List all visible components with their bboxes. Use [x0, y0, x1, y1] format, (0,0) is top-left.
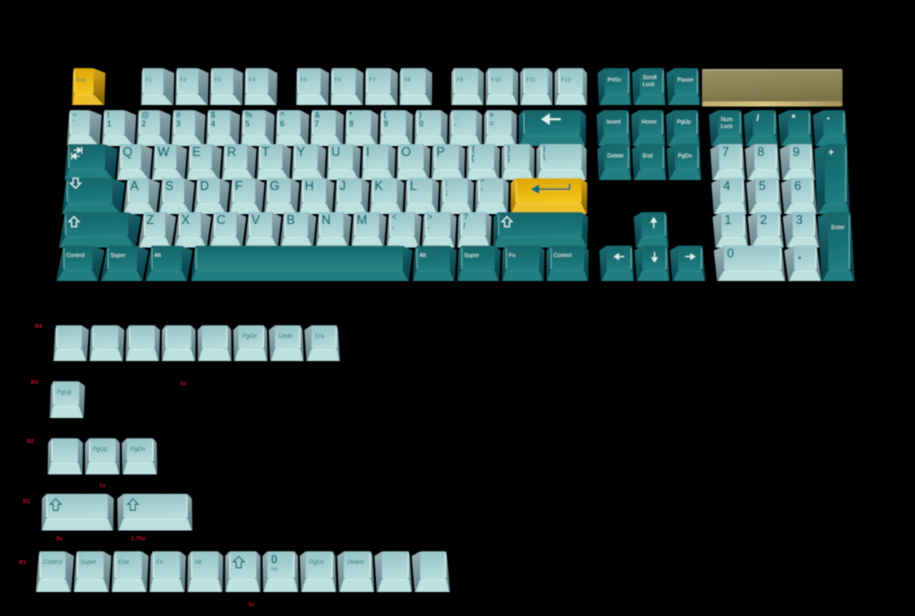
svg-text:R1: R1 [19, 560, 26, 566]
svg-text:R: R [227, 145, 236, 159]
svg-text:$: $ [211, 111, 216, 120]
svg-text:F5: F5 [300, 78, 307, 84]
svg-text:0: 0 [419, 120, 424, 129]
svg-text:*: * [792, 113, 796, 123]
svg-text:R3: R3 [31, 380, 38, 386]
svg-text:1.75u: 1.75u [131, 536, 145, 542]
svg-text:^: ^ [280, 111, 285, 120]
svg-text:<: < [392, 213, 397, 222]
svg-text:Control: Control [43, 560, 63, 566]
svg-text:(: ( [384, 111, 387, 120]
svg-text:F12: F12 [561, 78, 571, 84]
svg-text:PgUp: PgUp [57, 390, 73, 396]
svg-text:PgDn: PgDn [130, 447, 146, 453]
svg-text:G: G [270, 179, 280, 193]
svg-text:9: 9 [384, 120, 389, 129]
svg-text:0: 0 [727, 247, 734, 261]
svg-text:>: > [428, 213, 433, 222]
svg-text:+: + [829, 147, 834, 157]
svg-text:2: 2 [760, 213, 767, 227]
svg-text:F1: F1 [146, 78, 153, 84]
svg-text:F2: F2 [180, 78, 187, 84]
svg-text:,: , [392, 222, 394, 231]
svg-text:W: W [158, 145, 170, 159]
svg-text:F9: F9 [457, 78, 464, 84]
svg-text:R1: R1 [23, 499, 30, 505]
svg-text:F3: F3 [214, 78, 221, 84]
svg-text:K: K [375, 179, 384, 193]
svg-text:L: L [410, 179, 417, 193]
svg-text:7: 7 [315, 120, 320, 129]
svg-text:": " [481, 179, 485, 188]
svg-text:S: S [165, 179, 173, 193]
svg-text:?: ? [463, 213, 468, 222]
svg-text:PgUp: PgUp [677, 120, 691, 126]
svg-text:M: M [357, 213, 367, 227]
svg-text:{: { [472, 145, 475, 154]
svg-text:~: ~ [72, 111, 77, 120]
svg-text:-: - [827, 113, 830, 123]
svg-text:Esc: Esc [77, 78, 87, 84]
svg-text:@: @ [142, 111, 150, 120]
svg-text:PgDn: PgDn [678, 154, 692, 160]
svg-text:Alt: Alt [194, 560, 202, 566]
svg-text:Y: Y [297, 145, 306, 159]
svg-text:O: O [401, 145, 411, 159]
svg-text:1u: 1u [180, 381, 186, 387]
svg-text:F: F [235, 179, 243, 193]
svg-text:End: End [643, 154, 653, 160]
svg-text:1: 1 [107, 120, 112, 129]
svg-text:4: 4 [723, 179, 730, 193]
svg-text:R2: R2 [27, 439, 34, 445]
svg-text:1u: 1u [99, 483, 105, 489]
svg-text:Insert: Insert [607, 120, 621, 126]
svg-text:Z: Z [146, 213, 154, 227]
svg-text:F10: F10 [491, 78, 501, 84]
svg-text:I: I [366, 145, 369, 159]
svg-text:F8: F8 [404, 78, 411, 84]
svg-text:Super: Super [80, 560, 97, 566]
svg-text:Fn: Fn [156, 560, 164, 566]
svg-text:N: N [322, 213, 331, 227]
svg-text:Alt: Alt [419, 253, 426, 259]
svg-text:5: 5 [245, 120, 250, 129]
svg-text:PgDn: PgDn [242, 334, 258, 340]
svg-text:1: 1 [725, 213, 732, 227]
svg-text:R4: R4 [35, 324, 43, 330]
svg-text:U: U [331, 145, 340, 159]
svg-text:V: V [252, 213, 261, 227]
svg-text:PrtSc: PrtSc [608, 78, 622, 84]
svg-text:6: 6 [280, 120, 285, 129]
svg-text:2u: 2u [56, 536, 62, 542]
svg-text:T: T [262, 145, 270, 159]
svg-text::: : [445, 179, 448, 188]
svg-text:Fn: Fn [509, 253, 516, 259]
svg-text:Enter: Enter [831, 225, 845, 231]
svg-text:End: End [118, 560, 129, 566]
svg-text:_: _ [453, 111, 459, 120]
svg-text:F4: F4 [249, 78, 256, 84]
svg-text:Lock: Lock [643, 82, 655, 88]
svg-text:6: 6 [794, 179, 801, 193]
svg-text:3: 3 [176, 120, 181, 129]
svg-text:1u: 1u [248, 602, 254, 608]
svg-text:B: B [287, 213, 295, 227]
svg-text:Control: Control [66, 253, 84, 259]
svg-text:;: ; [445, 188, 448, 197]
svg-text:Delete: Delete [347, 560, 365, 566]
svg-text:J: J [340, 179, 346, 193]
svg-text:!: ! [107, 111, 110, 120]
svg-text:ins: ins [271, 566, 278, 572]
svg-text:`: ` [72, 120, 75, 129]
svg-text:Super: Super [464, 253, 479, 259]
svg-text:#: # [176, 111, 181, 120]
svg-text:PgUp: PgUp [93, 447, 109, 453]
svg-text:%: % [245, 111, 252, 120]
svg-text:E: E [192, 145, 200, 159]
svg-text:F6: F6 [335, 78, 342, 84]
svg-text:7: 7 [722, 145, 729, 159]
svg-text:Pause: Pause [678, 78, 694, 84]
svg-text:4: 4 [211, 120, 216, 129]
svg-text:Lock: Lock [721, 124, 733, 130]
svg-text:A: A [130, 179, 139, 193]
svg-text:]: ] [507, 154, 510, 163]
svg-text:5: 5 [759, 179, 766, 193]
svg-text:F7: F7 [369, 78, 376, 84]
svg-text:Num: Num [721, 117, 733, 123]
svg-text:Q: Q [123, 145, 133, 159]
svg-text:+: + [489, 111, 494, 120]
svg-text:2: 2 [142, 120, 147, 129]
svg-text:PgDn: PgDn [309, 560, 325, 566]
svg-text:Undo: Undo [278, 334, 293, 340]
svg-text:&: & [315, 111, 321, 120]
svg-text:X: X [181, 213, 190, 227]
svg-text:8: 8 [349, 120, 354, 129]
svg-text:Super: Super [110, 253, 125, 259]
svg-text:8: 8 [757, 145, 764, 159]
svg-text:D: D [200, 179, 209, 193]
svg-text:0: 0 [271, 552, 278, 566]
svg-text:Home: Home [642, 120, 657, 126]
svg-text:Control: Control [554, 253, 572, 259]
svg-text:Era: Era [315, 334, 325, 340]
svg-text:': ' [481, 188, 483, 197]
svg-text:Alt: Alt [154, 253, 161, 259]
svg-text:): ) [419, 111, 422, 120]
svg-text:-: - [454, 120, 457, 129]
svg-text:.: . [428, 222, 430, 231]
svg-text:H: H [305, 179, 314, 193]
svg-text:9: 9 [793, 145, 800, 159]
svg-text:Delete: Delete [607, 154, 623, 160]
svg-text:=: = [489, 120, 494, 129]
svg-text:F11: F11 [526, 78, 535, 84]
svg-text:Scroll: Scroll [643, 75, 657, 81]
svg-text:}: } [507, 145, 510, 154]
svg-text:3: 3 [796, 213, 803, 227]
svg-text:P: P [437, 145, 445, 159]
svg-text:|: | [543, 145, 545, 154]
svg-text:C: C [217, 213, 226, 227]
svg-text:[: [ [472, 154, 475, 163]
